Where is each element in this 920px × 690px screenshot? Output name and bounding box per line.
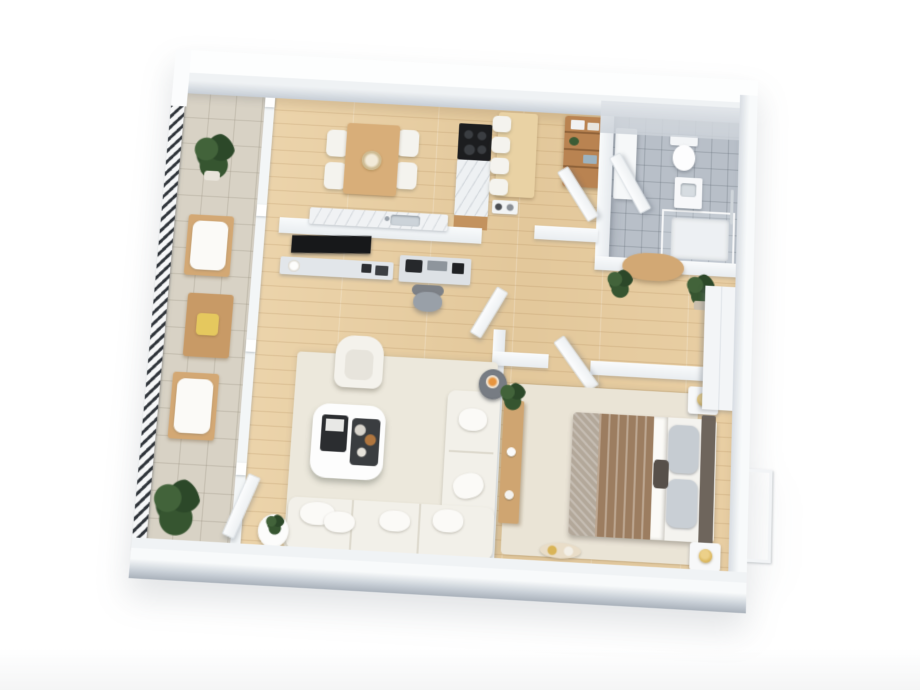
bathroom-sink-basin <box>680 183 696 197</box>
bar-stool <box>492 115 511 132</box>
tv-screen <box>291 235 372 253</box>
console-decor-dark <box>375 265 389 276</box>
shelf-boxes <box>571 120 585 130</box>
kitchen-marble-island <box>454 159 491 217</box>
sofa-pillow <box>458 408 487 432</box>
office-chair-seat <box>413 291 443 312</box>
glass-mullion <box>256 204 267 216</box>
dining-chair <box>394 162 417 190</box>
glass-mullion <box>245 339 256 352</box>
bar-stool <box>490 157 509 174</box>
desk-monitor <box>405 259 423 273</box>
kitchen-appliances <box>492 200 518 215</box>
desk-speaker <box>452 263 465 274</box>
coffee-table-tray-prints <box>320 414 349 452</box>
kitchen-cooktop <box>457 123 492 161</box>
glass-mullion <box>236 462 247 475</box>
console-decor-black <box>361 264 372 273</box>
kitchen-sink <box>390 215 420 227</box>
bar-stool <box>491 136 510 153</box>
dining-chair <box>397 129 420 157</box>
balcony-armchair-2-cushion <box>173 378 214 435</box>
living-armchair-seat <box>344 349 374 381</box>
bed-cushion-dark <box>653 459 669 489</box>
apartment-plan <box>129 49 758 613</box>
desk-equipment <box>427 260 447 271</box>
bed-pillow-gray <box>666 479 698 529</box>
bottom-haze <box>0 648 920 690</box>
bar-stool <box>489 178 509 195</box>
bed-pillow-gray <box>668 425 700 475</box>
juliet-railing <box>745 469 773 564</box>
coffee-table-tray-cups <box>349 418 380 466</box>
balcony-plant-pot <box>204 170 221 180</box>
bed-blanket-brown <box>595 414 654 540</box>
sofa-pillow <box>379 510 411 532</box>
floor-plan-render <box>0 0 920 690</box>
sofa-pillow <box>432 509 464 534</box>
sofa-pillow <box>323 511 355 533</box>
shelf-books <box>583 155 597 164</box>
balcony-table-tray <box>196 313 220 336</box>
shelf-boxes <box>587 123 599 131</box>
balcony-armchair-1-cushion <box>189 220 229 271</box>
